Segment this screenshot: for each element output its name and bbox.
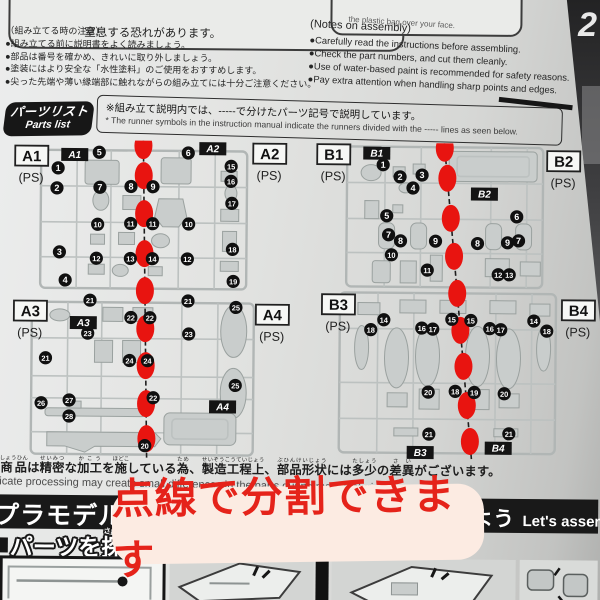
part-number-circle: 19	[227, 275, 240, 288]
svg-text:25: 25	[231, 381, 239, 390]
part-number-circle: 21	[422, 427, 435, 440]
runner-label-B3: B3(PS)	[322, 294, 355, 333]
svg-text:14: 14	[148, 255, 157, 264]
svg-text:21: 21	[425, 430, 433, 439]
svg-text:12: 12	[494, 271, 502, 280]
svg-text:A4: A4	[263, 307, 283, 324]
assembly-notes-jp: （組み立てる時の注意） ●組み立てる前に説明書をよく読みましょう。●部品は番号を…	[5, 24, 317, 90]
parts-list-badge: パーツリスト Parts list	[2, 101, 95, 136]
part-number-circle: 2	[393, 170, 406, 183]
adjacent-page-image-fragment	[582, 86, 600, 164]
svg-text:21: 21	[505, 430, 513, 439]
part-number-circle: 10	[385, 248, 398, 261]
svg-text:3: 3	[57, 247, 62, 257]
svg-text:8: 8	[475, 239, 480, 249]
adjacent-page-number: 2	[578, 6, 597, 45]
svg-text:20: 20	[141, 442, 149, 451]
svg-text:1: 1	[381, 160, 386, 170]
svg-text:18: 18	[543, 327, 551, 336]
svg-text:18: 18	[228, 245, 236, 254]
svg-text:6: 6	[186, 148, 191, 158]
part-number-circle: 9	[429, 235, 442, 248]
svg-text:7: 7	[97, 182, 102, 192]
svg-text:(PS): (PS)	[257, 169, 282, 183]
svg-text:(PS): (PS)	[18, 171, 43, 185]
part-number-circle: 21	[181, 294, 194, 307]
part-number-circle: 13	[124, 252, 137, 265]
svg-text:B3: B3	[414, 448, 427, 459]
part-number-circle: 7	[93, 181, 106, 194]
illustration-panel-parts	[519, 560, 597, 600]
svg-text:22: 22	[127, 313, 135, 322]
split-marker-dot	[136, 277, 154, 304]
part-number-circle: 15	[445, 313, 458, 326]
part-number-circle: 12	[90, 252, 103, 265]
part-number-circle: 15	[225, 160, 238, 173]
part-number-circle: 22	[146, 391, 159, 404]
part-number-circle: 10	[182, 217, 195, 230]
svg-text:21: 21	[86, 296, 94, 305]
ruby-word: 精密せいみつ	[40, 461, 65, 475]
svg-text:13: 13	[126, 254, 134, 263]
runner-label-A1: A1(PS)	[15, 146, 48, 185]
part-number-circle: 20	[498, 387, 511, 400]
svg-text:15: 15	[448, 315, 456, 324]
runner-badge-A3: A3	[70, 316, 97, 329]
part-number-circle: 21	[83, 294, 96, 307]
svg-text:B1: B1	[370, 149, 383, 160]
part-number-circle: 4	[406, 181, 419, 194]
part-number-circle: 11	[146, 217, 159, 230]
part-number-circle: 3	[415, 168, 428, 181]
split-marker-dot	[134, 139, 152, 159]
svg-text:19: 19	[470, 388, 478, 397]
svg-text:20: 20	[500, 390, 508, 399]
svg-text:13: 13	[505, 271, 513, 280]
part-number-circle: 16	[224, 175, 237, 188]
part-number-circle: 20	[138, 439, 151, 452]
part-number-circle: 22	[143, 311, 156, 324]
parts-list-badge-en: Parts list	[3, 119, 93, 132]
svg-text:9: 9	[150, 182, 155, 192]
runner-badge-A4: A4	[209, 400, 236, 413]
svg-text:27: 27	[65, 396, 73, 405]
part-number-circle: 21	[39, 351, 52, 364]
split-line-sticker-banner: 点線で分割できます	[111, 483, 484, 564]
svg-text:A4: A4	[215, 402, 229, 413]
cut-glyph-fragment	[0, 537, 8, 552]
band-title-right-en: Let's assemble	[522, 513, 600, 531]
part-number-circle: 23	[182, 327, 195, 340]
runner-label-A2: A2(PS)	[253, 144, 286, 183]
svg-text:15: 15	[467, 316, 475, 325]
svg-text:B1: B1	[324, 147, 343, 164]
svg-text:20: 20	[424, 388, 432, 397]
svg-text:8: 8	[128, 181, 133, 191]
part-number-circle: 25	[229, 301, 242, 314]
svg-text:A2: A2	[205, 144, 219, 155]
note-item-jp: ●尖った先端や薄い縁端部に触れながらの組み立てには十分ご注意ください。	[5, 75, 317, 90]
svg-text:17: 17	[429, 325, 437, 334]
part-number-circle: 2	[50, 181, 63, 194]
assembly-notes-en: (Notes on assembly) ●Carefully read the …	[307, 18, 571, 97]
part-number-circle: 24	[141, 354, 154, 367]
svg-text:A3: A3	[21, 303, 40, 320]
runner-badge-B3: B3	[407, 446, 434, 459]
part-number-circle: 7	[382, 228, 395, 241]
part-number-circle: 7	[512, 234, 525, 247]
runner-badge-B2: B2	[471, 187, 498, 200]
part-number-circle: 18	[364, 323, 377, 336]
part-number-circle: 17	[225, 197, 238, 210]
assembly-notes-jp-items: ●組み立てる前に説明書をよく読みましょう。●部品は番号を確かめ、きれいに取り外し…	[5, 38, 317, 90]
parts-list-note-box: ※組み立て説明内では、-----で分けたパーツ記号で説明しています。 * The…	[96, 95, 563, 146]
part-number-circle: 6	[182, 146, 195, 159]
svg-text:25: 25	[232, 303, 240, 312]
split-line-sticker-text: 点線で分割できます	[111, 460, 485, 587]
svg-text:A1: A1	[22, 148, 41, 165]
svg-text:11: 11	[423, 266, 431, 275]
svg-text:6: 6	[514, 212, 519, 222]
svg-text:14: 14	[530, 317, 539, 326]
svg-text:16: 16	[418, 324, 426, 333]
band-title-right: よう Let's assemble	[472, 503, 600, 534]
svg-text:7: 7	[386, 230, 391, 240]
svg-text:1: 1	[56, 163, 61, 173]
part-number-circle: 3	[53, 245, 66, 258]
svg-text:5: 5	[384, 211, 389, 221]
parts-list-badge-jp: パーツリスト	[4, 104, 94, 119]
svg-text:12: 12	[183, 255, 191, 264]
svg-text:(PS): (PS)	[550, 176, 575, 190]
svg-text:15: 15	[227, 162, 235, 171]
svg-text:10: 10	[184, 220, 192, 229]
svg-text:B3: B3	[329, 297, 348, 314]
svg-text:11: 11	[127, 219, 135, 228]
part-number-circle: 10	[91, 218, 104, 231]
part-number-circle: 14	[146, 252, 159, 265]
runner-block-A: 1234578910111112131461012151617181921222…	[0, 139, 296, 464]
part-number-circle: 24	[123, 354, 136, 367]
part-number-circle: 13	[503, 268, 516, 281]
svg-text:10: 10	[387, 251, 395, 260]
part-number-circle: 1	[51, 161, 64, 174]
part-number-circle: 5	[93, 146, 106, 159]
part-number-circle: 27	[62, 393, 75, 406]
svg-text:24: 24	[143, 357, 152, 366]
part-number-circle: 8	[471, 237, 484, 250]
part-number-circle: 5	[380, 209, 393, 222]
runner-badge-B4: B4	[485, 442, 512, 455]
svg-text:12: 12	[92, 254, 100, 263]
svg-text:21: 21	[41, 354, 49, 363]
svg-text:9: 9	[505, 238, 510, 248]
svg-text:(PS): (PS)	[259, 330, 284, 344]
part-number-circle: 8	[124, 180, 137, 193]
runner-label-A4: A4(PS)	[256, 305, 289, 344]
runner-badge-A1: A1	[61, 148, 88, 161]
svg-text:10: 10	[93, 220, 101, 229]
runner-block-B: 1234567898971011121314151514161716171818…	[299, 142, 600, 467]
split-marker-dot	[438, 165, 456, 192]
part-number-circle: 26	[34, 396, 47, 409]
runner-badge-B1: B1	[363, 147, 390, 160]
runner-badge-A2: A2	[199, 142, 226, 155]
runner-label-A3: A3(PS)	[14, 301, 47, 340]
part-number-circle: 25	[229, 379, 242, 392]
part-number-circle: 17	[426, 323, 439, 336]
svg-text:4: 4	[63, 275, 68, 285]
svg-text:22: 22	[149, 394, 157, 403]
part-number-circle: 6	[510, 210, 523, 223]
split-marker-dot	[445, 243, 463, 270]
svg-text:18: 18	[367, 326, 375, 335]
svg-text:3: 3	[420, 170, 425, 180]
split-marker-dot	[442, 205, 460, 232]
svg-text:4: 4	[410, 183, 415, 193]
part-number-circle: 11	[421, 263, 434, 276]
svg-text:B4: B4	[492, 444, 505, 455]
svg-text:14: 14	[380, 316, 389, 325]
svg-text:B2: B2	[478, 190, 491, 201]
part-number-circle: 12	[181, 252, 194, 265]
part-number-circle: 9	[501, 236, 514, 249]
part-number-circle: 14	[377, 313, 390, 326]
part-number-circle: 19	[468, 386, 481, 399]
svg-text:(PS): (PS)	[321, 169, 346, 183]
svg-text:11: 11	[149, 220, 157, 229]
svg-text:16: 16	[227, 177, 235, 186]
svg-text:24: 24	[125, 356, 134, 365]
svg-text:7: 7	[516, 236, 521, 246]
svg-text:5: 5	[97, 147, 102, 157]
part-number-circle: 1	[377, 158, 390, 171]
svg-text:17: 17	[497, 326, 505, 335]
svg-text:16: 16	[486, 325, 494, 334]
ruby-word: 加工かこう	[77, 461, 102, 475]
svg-text:26: 26	[37, 399, 45, 408]
svg-text:A2: A2	[260, 146, 279, 163]
runner-label-B2: B2(PS)	[547, 151, 580, 190]
part-number-circle: 11	[124, 217, 137, 230]
svg-text:(PS): (PS)	[565, 325, 590, 339]
svg-text:2: 2	[54, 183, 59, 193]
part-number-circle: 17	[494, 323, 507, 336]
part-number-circle: 9	[146, 180, 159, 193]
svg-text:2: 2	[398, 172, 403, 182]
part-number-circle: 18	[226, 243, 239, 256]
split-marker-dot	[461, 428, 479, 455]
svg-text:23: 23	[185, 330, 193, 339]
svg-text:(PS): (PS)	[17, 326, 42, 340]
svg-text:(PS): (PS)	[325, 319, 350, 333]
svg-text:17: 17	[228, 199, 236, 208]
svg-text:23: 23	[84, 329, 92, 338]
part-number-circle: 20	[422, 385, 435, 398]
svg-text:18: 18	[451, 387, 459, 396]
svg-text:21: 21	[184, 297, 192, 306]
runner-label-B1: B1(PS)	[317, 144, 350, 183]
part-number-circle: 4	[59, 273, 72, 286]
svg-text:A1: A1	[67, 150, 81, 161]
part-number-circle: 18	[540, 324, 553, 337]
svg-text:B4: B4	[569, 303, 589, 320]
svg-text:B2: B2	[554, 154, 573, 171]
runner-label-B4: B4(PS)	[562, 300, 595, 339]
svg-text:A3: A3	[76, 318, 90, 329]
manual-page-photo: 窒息する恐れがあります。 the plastic bag over your f…	[0, 0, 600, 600]
svg-text:28: 28	[65, 412, 73, 421]
part-number-circle: 8	[394, 234, 407, 247]
assembly-notes-en-items: ●Carefully read the instructions before …	[307, 33, 571, 97]
part-number-circle: 18	[449, 385, 462, 398]
part-number-circle: 15	[464, 314, 477, 327]
part-number-circle: 14	[527, 314, 540, 327]
part-number-circle: 28	[62, 409, 75, 422]
svg-text:9: 9	[433, 236, 438, 246]
part-number-circle: 22	[124, 311, 137, 324]
svg-text:8: 8	[398, 236, 403, 246]
ruby-word: 商品しょうひん	[0, 460, 27, 474]
svg-text:22: 22	[146, 314, 154, 323]
part-number-circle: 21	[502, 427, 515, 440]
svg-text:19: 19	[229, 277, 237, 286]
